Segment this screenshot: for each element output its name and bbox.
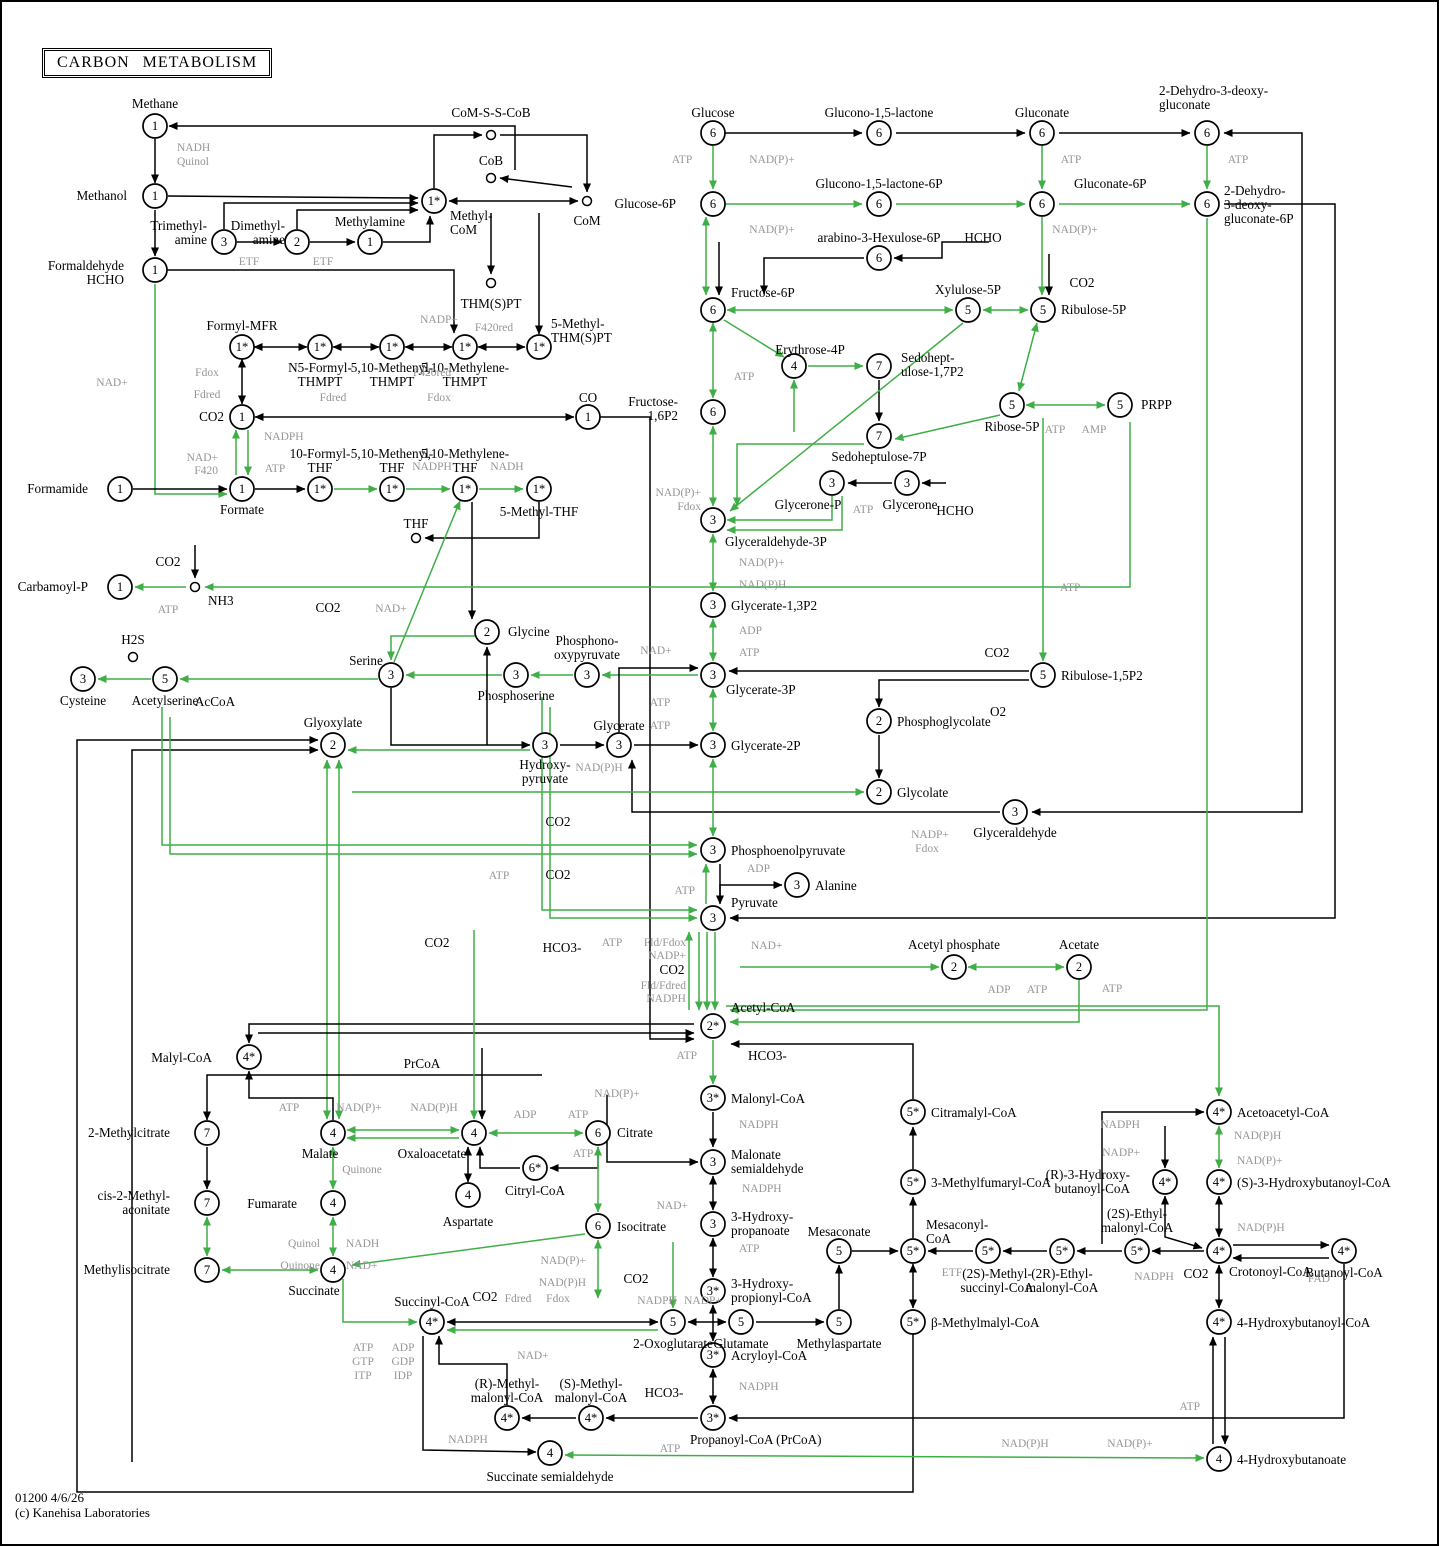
cofactor-atp: ATP bbox=[734, 371, 754, 383]
label-formate: Formate bbox=[220, 502, 264, 517]
node-count-ribulose-5p: 5 bbox=[1040, 303, 1046, 317]
label-hco3: HCO3- bbox=[748, 1048, 787, 1063]
node-count-phosphoserine: 3 bbox=[513, 668, 519, 682]
node-count-5-methyl-thf: 1* bbox=[533, 482, 546, 496]
label-gluconate-6p: Gluconate-6P bbox=[1074, 176, 1147, 191]
label-s-methyl: (S)-Methyl-malonyl-CoA bbox=[555, 1376, 628, 1405]
node-4-hydroxybutanoate[interactable]: 4 bbox=[1207, 1447, 1231, 1471]
label-glycerate-2p: Glycerate-2P bbox=[731, 738, 801, 753]
node-succinate-semialdehyde[interactable]: 4 bbox=[538, 1441, 562, 1465]
cofactor-fdred: Fdred bbox=[505, 1293, 532, 1305]
label-glycerone: Glycerone bbox=[883, 497, 938, 512]
node-count-malate: 4 bbox=[330, 1126, 337, 1140]
node-propanoyl-coa[interactable]: 3* bbox=[701, 1406, 725, 1430]
node-butanoyl-coa[interactable]: 4* bbox=[1332, 1239, 1356, 1263]
node-count-succinyl-coa: 4* bbox=[426, 1315, 439, 1329]
node-count-fumarate: 4 bbox=[330, 1196, 337, 1210]
label-10-formyl: 10-Formyl-THF bbox=[290, 446, 351, 475]
label-thf: THF bbox=[404, 516, 429, 531]
node-glucono-1-5-lactone[interactable]: 6 bbox=[867, 121, 891, 145]
cofactor-nadh: NADH bbox=[177, 142, 210, 154]
label-prcoa: PrCoA bbox=[404, 1056, 441, 1071]
node-count-glyceraldehyde-3p: 3 bbox=[710, 513, 716, 527]
node-count-s-methylmalonyl-coa: 4* bbox=[585, 1411, 598, 1425]
node-glycine[interactable]: 2 bbox=[475, 620, 499, 644]
node-fructose-6p[interactable]: 6 bbox=[701, 298, 725, 322]
node-count-citrate: 6 bbox=[595, 1126, 601, 1140]
label-h2s: H2S bbox=[121, 632, 144, 647]
node-glycerate-2p[interactable]: 3 bbox=[701, 733, 725, 757]
cofactor-atp: ATP bbox=[602, 937, 622, 949]
node-glycolate[interactable]: 2 bbox=[867, 780, 891, 804]
cofactor-nad-p: NAD(P)+ bbox=[336, 1102, 381, 1114]
node-formate[interactable]: 1 bbox=[230, 477, 254, 501]
node-count-carbamoyl-p: 1 bbox=[117, 580, 123, 594]
label-co2: CO2 bbox=[985, 645, 1010, 660]
node-malonate-semialdehyde[interactable]: 3 bbox=[701, 1150, 725, 1174]
node-n5-formyl-thmpt[interactable]: 1* bbox=[308, 335, 332, 359]
cofactor-adp: ADP bbox=[739, 625, 762, 637]
node-count-oxaloacetate: 4 bbox=[471, 1126, 478, 1140]
edge-10 bbox=[500, 178, 572, 187]
node-ribulose-1-5p2[interactable]: 5 bbox=[1031, 663, 1055, 687]
cofactor-nad: NAD+ bbox=[640, 645, 671, 657]
label-co2: CO2 bbox=[546, 867, 571, 882]
node-formyl-mfr[interactable]: 1* bbox=[230, 335, 254, 359]
node-count-glucono-1-5-lactone: 6 bbox=[876, 126, 882, 140]
node-count-glyceraldehyde: 3 bbox=[1012, 805, 1018, 819]
label-alanine: Alanine bbox=[815, 878, 857, 893]
node-glyceraldehyde-3p[interactable]: 3 bbox=[701, 508, 725, 532]
node-count-alanine: 3 bbox=[794, 878, 800, 892]
node-count-glycolate: 2 bbox=[876, 785, 882, 799]
node-count-xylulose-5p: 5 bbox=[965, 303, 971, 317]
node-count-glucono-1-5-lactone-6p: 6 bbox=[876, 197, 882, 211]
node-co2[interactable]: 1 bbox=[230, 405, 254, 429]
node-count-phosphoenolpyruvate: 3 bbox=[710, 843, 716, 857]
label-phosphono: Phosphono-oxypyruvate bbox=[554, 633, 620, 662]
node-gluconate[interactable]: 6 bbox=[1030, 121, 1054, 145]
node-count-r-methylmalonyl-coa: 4* bbox=[501, 1411, 514, 1425]
label-xylulose-5p: Xylulose-5P bbox=[935, 282, 1001, 297]
cofactor-nad-p: NAD(P)+ bbox=[656, 487, 701, 499]
node-count-10-formyl-thf: 1* bbox=[314, 482, 327, 496]
node-malonyl-coa[interactable]: 3* bbox=[701, 1086, 725, 1110]
node-xylulose-5p[interactable]: 5 bbox=[956, 298, 980, 322]
node-count-glycerate: 3 bbox=[616, 738, 622, 752]
node-count-formate: 1 bbox=[239, 482, 245, 496]
map-footer: 01200 4/6/26 (c) Kanehisa Laboratories bbox=[15, 1490, 150, 1520]
label-mesaconyl: Mesaconyl-CoA bbox=[926, 1217, 988, 1246]
node-methylene-thmpt[interactable]: 1* bbox=[453, 335, 477, 359]
node-count-methylisocitrate: 7 bbox=[204, 1263, 210, 1277]
label-glycerate-3p: Glycerate-3P bbox=[726, 682, 796, 697]
metabolite-dot-cob[interactable] bbox=[487, 174, 496, 183]
node-phosphoserine[interactable]: 3 bbox=[504, 663, 528, 687]
node-count-malonate-semialdehyde: 3 bbox=[710, 1155, 716, 1169]
node-citrate[interactable]: 6 bbox=[586, 1121, 610, 1145]
node-citryl-coa[interactable]: 6* bbox=[523, 1156, 547, 1180]
node-glycerate-3p[interactable]: 3 bbox=[701, 663, 725, 687]
cofactor-adp: ADP bbox=[513, 1109, 536, 1121]
node-formaldehyde[interactable]: 1 bbox=[143, 258, 167, 282]
label-hco3: HCO3- bbox=[543, 940, 582, 955]
label-sedoheptulose-7p: Sedoheptulose-7P bbox=[831, 449, 926, 464]
node-count-3-hydroxypropanoate: 3 bbox=[710, 1217, 716, 1231]
label-co2: CO2 bbox=[425, 935, 450, 950]
label-succinyl-coa: Succinyl-CoA bbox=[394, 1294, 470, 1309]
cofactor-atp: ATP bbox=[677, 1050, 697, 1062]
cofactor-nad-p: NAD(P)+ bbox=[594, 1088, 639, 1100]
node-count-erythrose-4p: 4 bbox=[791, 359, 798, 373]
node-2s-methylsuccinyl-coa[interactable]: 5* bbox=[976, 1239, 1000, 1263]
node-methenyl-thmpt[interactable]: 1* bbox=[380, 335, 404, 359]
node-count-butanoyl-coa: 4* bbox=[1338, 1244, 1351, 1258]
node-count-glucose-6p: 6 bbox=[710, 197, 716, 211]
node-beta-methylmalyl-coa[interactable]: 5* bbox=[901, 1310, 925, 1334]
cofactor-nad-p-h: NAD(P)H bbox=[1234, 1130, 1281, 1142]
label-pyruvate: Pyruvate bbox=[731, 895, 778, 910]
cofactor-quinol: Quinol bbox=[288, 1238, 320, 1250]
label-prpp: PRPP bbox=[1141, 397, 1172, 412]
node-count-glycerate-2p: 3 bbox=[710, 738, 716, 752]
node-erythrose-4p[interactable]: 4 bbox=[782, 354, 806, 378]
label-phosphoserine: Phosphoserine bbox=[478, 688, 555, 703]
cofactor-nad-p-h: NAD(P)H bbox=[1001, 1438, 1048, 1450]
node-co[interactable]: 1 bbox=[576, 405, 600, 429]
label-acetoacetyl-coa: Acetoacetyl-CoA bbox=[1237, 1105, 1330, 1120]
edge-1 bbox=[169, 126, 515, 170]
cofactor-quinone: Quinone bbox=[280, 1260, 320, 1272]
node-2-dehydro-3-deoxy-gluconate[interactable]: 6 bbox=[1195, 121, 1219, 145]
cofactor-nadph: NADPH bbox=[646, 993, 686, 1005]
node-glycerone[interactable]: 3 bbox=[895, 471, 919, 495]
cofactor-atp: ATP bbox=[739, 647, 759, 659]
label-2s-methyl: (2S)-Methyl-succinyl-CoA bbox=[960, 1266, 1034, 1295]
node-glycerate-1-3p2[interactable]: 3 bbox=[701, 593, 725, 617]
node-phosphonooxypyruvate[interactable]: 3 bbox=[575, 663, 599, 687]
node-count-methylaspartate: 5 bbox=[836, 1315, 842, 1329]
cofactor-nad: NAD+ bbox=[375, 603, 406, 615]
cofactor-atp: ATP bbox=[1045, 424, 1065, 436]
node-alanine[interactable]: 3 bbox=[785, 873, 809, 897]
cofactor-nad: NAD+ bbox=[517, 1350, 548, 1362]
cofactor-nadph: NADPH bbox=[1100, 1119, 1140, 1131]
label-accoa: AcCoA bbox=[195, 694, 236, 709]
node-count-malonyl-coa: 3* bbox=[707, 1091, 720, 1105]
cofactor-nad-p-h: NAD(P)H bbox=[410, 1102, 457, 1114]
node-glyoxylate[interactable]: 2 bbox=[321, 733, 345, 757]
label-3-methylfumaryl-coa: 3-Methylfumaryl-CoA bbox=[931, 1175, 1052, 1190]
node-acetyl-phosphate[interactable]: 2 bbox=[942, 955, 966, 979]
metabolite-dot-com[interactable] bbox=[583, 197, 592, 206]
node-hydroxypyruvate[interactable]: 3 bbox=[533, 733, 557, 757]
label-formamide: Formamide bbox=[27, 481, 88, 496]
label-aspartate: Aspartate bbox=[443, 1214, 494, 1229]
label-co: CO bbox=[579, 390, 597, 405]
label-fumarate: Fumarate bbox=[247, 1196, 297, 1211]
node-methylamine[interactable]: 1 bbox=[358, 230, 382, 254]
node-methenyl-thf[interactable]: 1* bbox=[380, 477, 404, 501]
label-methylaspartate: Methylaspartate bbox=[797, 1336, 882, 1351]
node-sedoheptulose-1-7p2[interactable]: 7 bbox=[867, 354, 891, 378]
node-prpp[interactable]: 5 bbox=[1108, 393, 1132, 417]
node-count-formyl-mfr: 1* bbox=[236, 340, 249, 354]
node-acetate[interactable]: 2 bbox=[1067, 955, 1091, 979]
cofactor-etf: ETF bbox=[239, 256, 259, 268]
node-malyl-coa[interactable]: 4* bbox=[237, 1045, 261, 1069]
node-methanol[interactable]: 1 bbox=[143, 184, 167, 208]
node-malate[interactable]: 4 bbox=[321, 1121, 345, 1145]
label-glycerate: Glycerate bbox=[593, 718, 644, 733]
label-co2: CO2 bbox=[660, 962, 685, 977]
node-isocitrate[interactable]: 6 bbox=[586, 1214, 610, 1238]
node-count-aspartate: 4 bbox=[465, 1188, 472, 1202]
metabolite-dot-thmspt[interactable] bbox=[487, 279, 496, 288]
label-glucono-1-5-lactone: Glucono-1,5-lactone bbox=[825, 105, 934, 120]
cofactor-fld-fdred: Fld/Fdred bbox=[641, 980, 687, 992]
cofactor-f420: F420 bbox=[194, 465, 218, 477]
metabolite-dot-h2s[interactable] bbox=[129, 653, 138, 662]
node-oxaloacetate[interactable]: 4 bbox=[462, 1121, 486, 1145]
node-count-citryl-coa: 6* bbox=[529, 1161, 542, 1175]
node-count-glycerone: 3 bbox=[904, 476, 910, 490]
node-acetyl-coa[interactable]: 2* bbox=[701, 1014, 725, 1038]
node-count-2-dehydro-3-deoxy-gluconate-6p: 6 bbox=[1204, 197, 1210, 211]
node-aspartate[interactable]: 4 bbox=[456, 1183, 480, 1207]
cofactor-fad: FAD bbox=[1308, 1273, 1330, 1285]
node-2-dehydro-3-deoxy-gluconate-6p[interactable]: 6 bbox=[1195, 192, 1219, 216]
label-mesaconate: Mesaconate bbox=[808, 1224, 871, 1239]
label-3-hydroxy: 3-Hydroxy-propionyl-CoA bbox=[731, 1276, 812, 1305]
node-fructose-1-6p2[interactable]: 6 bbox=[701, 400, 725, 424]
node-trimethylamine[interactable]: 3 bbox=[212, 230, 236, 254]
label-com-s-s-cob: CoM-S-S-CoB bbox=[451, 105, 530, 120]
label-cis-2-methyl: cis-2-Methyl-aconitate bbox=[97, 1188, 170, 1217]
node-count-phosphonooxypyruvate: 3 bbox=[584, 668, 590, 682]
cofactor-nadph: NADPH bbox=[742, 1183, 782, 1195]
node-succinate[interactable]: 4 bbox=[321, 1258, 345, 1282]
label-malonate: Malonatesemialdehyde bbox=[731, 1147, 804, 1176]
edge-79 bbox=[879, 680, 1029, 707]
node-count-2s-methylsuccinyl-coa: 5* bbox=[982, 1244, 995, 1258]
label-glycolate: Glycolate bbox=[897, 785, 948, 800]
node-count-acetate: 2 bbox=[1076, 960, 1082, 974]
label-phosphoglycolate: Phosphoglycolate bbox=[897, 714, 991, 729]
cofactor-nadh: NADH bbox=[490, 461, 523, 473]
node-glyceraldehyde[interactable]: 3 bbox=[1003, 800, 1027, 824]
label-serine: Serine bbox=[349, 653, 383, 668]
label-co2: CO2 bbox=[546, 814, 571, 829]
map-id: 01200 4/6/26 bbox=[15, 1490, 150, 1505]
metabolite-dot-nh3[interactable] bbox=[191, 583, 200, 592]
node-count-sedoheptulose-1-7p2: 7 bbox=[876, 359, 882, 373]
node-count-s-3-hydroxybutanoyl-coa: 4* bbox=[1213, 1175, 1226, 1189]
label-phosphoenolpyruvate: Phosphoenolpyruvate bbox=[731, 843, 845, 858]
node-fumarate[interactable]: 4 bbox=[321, 1191, 345, 1215]
node-count-glycine: 2 bbox=[484, 625, 490, 639]
node-glucose-6p[interactable]: 6 bbox=[701, 192, 725, 216]
label-glucose: Glucose bbox=[691, 105, 734, 120]
cofactor-nad-p: NAD(P)+ bbox=[1237, 1155, 1282, 1167]
label-crotonoyl-coa: Crotonoyl-CoA bbox=[1229, 1264, 1312, 1279]
node-5-methyl-thf[interactable]: 1* bbox=[527, 477, 551, 501]
node-count-gluconate: 6 bbox=[1039, 126, 1045, 140]
label-methyl: Methyl-CoM bbox=[450, 208, 493, 237]
labels-layer: MethaneMethanolTrimethyl-amineDimethyl-a… bbox=[18, 83, 1392, 1484]
node-count-methanol: 1 bbox=[152, 189, 158, 203]
cofactor-amp: AMP bbox=[1082, 424, 1107, 436]
cofactor-quinone: Quinone bbox=[342, 1164, 382, 1176]
node-count-r-3-hydroxybutanoyl-coa: 4* bbox=[1159, 1175, 1172, 1189]
map-title: CARBON METABOLISM bbox=[57, 54, 257, 71]
label-glyoxylate: Glyoxylate bbox=[304, 715, 363, 730]
node-count-2r-ethylmalonyl-coa: 5* bbox=[1056, 1244, 1069, 1258]
node-3-hydroxypropanoate[interactable]: 3 bbox=[701, 1212, 725, 1236]
node-methylisocitrate[interactable]: 7 bbox=[195, 1258, 219, 1282]
node-r-methylmalonyl-coa[interactable]: 4* bbox=[495, 1406, 519, 1430]
node-count-formaldehyde: 1 bbox=[152, 263, 158, 277]
node-phosphoglycolate[interactable]: 2 bbox=[867, 709, 891, 733]
cofactor-adp: ADP bbox=[391, 1342, 414, 1354]
label-co2: CO2 bbox=[316, 600, 341, 615]
label-2-dehydro-3-deoxy: 2-Dehydro-3-deoxy-gluconate bbox=[1159, 83, 1268, 112]
node-sedoheptulose-7p[interactable]: 7 bbox=[867, 424, 891, 448]
cofactor-nadp: NADP+ bbox=[1102, 1147, 1140, 1159]
label-glyceraldehyde: Glyceraldehyde bbox=[973, 825, 1057, 840]
cofactor-adp: ADP bbox=[747, 863, 770, 875]
node-citramalyl-coa[interactable]: 5* bbox=[901, 1100, 925, 1124]
node-acetylserine[interactable]: 5 bbox=[153, 667, 177, 691]
node-glutamate[interactable]: 5 bbox=[729, 1310, 753, 1334]
node-3-methylfumaryl-coa[interactable]: 5* bbox=[901, 1170, 925, 1194]
label-methylmalyl-coa: β-Methylmalyl-CoA bbox=[931, 1315, 1040, 1330]
label-com: CoM bbox=[573, 213, 600, 228]
label-methane: Methane bbox=[132, 96, 178, 111]
label-carbamoyl-p: Carbamoyl-P bbox=[18, 579, 88, 594]
node-formamide[interactable]: 1 bbox=[108, 477, 132, 501]
cofactor-etf: ETF bbox=[942, 1267, 962, 1279]
node-gluconate-6p[interactable]: 6 bbox=[1030, 192, 1054, 216]
node-succinyl-coa[interactable]: 4* bbox=[420, 1310, 444, 1334]
node-s-methylmalonyl-coa[interactable]: 4* bbox=[579, 1406, 603, 1430]
node-mesaconyl-coa[interactable]: 5* bbox=[901, 1239, 925, 1263]
cofactor-fld-fdox: Fld/Fdox bbox=[644, 937, 686, 949]
node-count-acetoacetyl-coa: 4* bbox=[1213, 1105, 1226, 1119]
node-2-methylcitrate[interactable]: 7 bbox=[195, 1121, 219, 1145]
node-methyl-thmspt[interactable]: 1* bbox=[527, 335, 551, 359]
cofactor-atp: ATP bbox=[650, 720, 670, 732]
cofactor-atp: ATP bbox=[1102, 983, 1122, 995]
node-2-oxoglutarate[interactable]: 5 bbox=[661, 1310, 685, 1334]
label-methanol: Methanol bbox=[76, 188, 127, 203]
label-n5-formyl: N5-Formyl-THMPT bbox=[288, 360, 352, 389]
node-10-formyl-thf[interactable]: 1* bbox=[308, 477, 332, 501]
metabolite-dot-thf[interactable] bbox=[412, 534, 421, 543]
label-4-hydroxybutanoate: 4-Hydroxybutanoate bbox=[1237, 1452, 1346, 1467]
label-glucono-1-5-lactone-6p: Glucono-1,5-lactone-6P bbox=[815, 176, 942, 191]
label-formaldehyde: FormaldehydeHCHO bbox=[48, 258, 124, 287]
label-glyceraldehyde-3p: Glyceraldehyde-3P bbox=[725, 534, 827, 549]
node-count-prpp: 5 bbox=[1117, 398, 1123, 412]
node-count-2-oxoglutarate: 5 bbox=[670, 1315, 676, 1329]
node-count-crotonoyl-coa: 4* bbox=[1213, 1244, 1226, 1258]
node-r-3-hydroxybutanoyl-coa[interactable]: 4* bbox=[1153, 1170, 1177, 1194]
node-glucono-1-5-lactone-6p[interactable]: 6 bbox=[867, 192, 891, 216]
label-cob: CoB bbox=[479, 153, 503, 168]
node-count-2-methylcitrate: 7 bbox=[204, 1126, 210, 1140]
node-glycerate[interactable]: 3 bbox=[607, 733, 631, 757]
node-count-gluconate-6p: 6 bbox=[1039, 197, 1045, 211]
label-oxaloacetate: Oxaloacetate bbox=[398, 1146, 467, 1161]
label-2s-ethyl: (2S)-Ethyl-malonyl-CoA bbox=[1101, 1206, 1174, 1235]
node-pyruvate[interactable]: 3 bbox=[701, 906, 725, 930]
cofactor-f420red: F420red bbox=[413, 367, 452, 379]
cofactor-nad-p-h: NAD(P)H bbox=[575, 762, 622, 774]
label-2-methylcitrate: 2-Methylcitrate bbox=[88, 1125, 170, 1140]
node-dimethylamine[interactable]: 2 bbox=[285, 230, 309, 254]
node-4-hydroxybutanoyl-coa[interactable]: 4* bbox=[1207, 1310, 1231, 1334]
node-phosphoenolpyruvate[interactable]: 3 bbox=[701, 838, 725, 862]
cofactor-nad-p: NAD(P)+ bbox=[749, 224, 794, 236]
cofactor-fdox: Fdox bbox=[546, 1293, 570, 1305]
node-cysteine[interactable]: 3 bbox=[71, 667, 95, 691]
node-methane[interactable]: 1 bbox=[143, 114, 167, 138]
edge-124 bbox=[565, 1455, 1204, 1458]
node-methylene-thf[interactable]: 1* bbox=[453, 477, 477, 501]
node-glycerone-p[interactable]: 3 bbox=[820, 471, 844, 495]
cofactor-nad-p: NAD(P)+ bbox=[749, 154, 794, 166]
node-count-glyoxylate: 2 bbox=[330, 738, 336, 752]
node-cis-2-methylaconitate[interactable]: 7 bbox=[195, 1191, 219, 1215]
cofactor-atp: ATP bbox=[660, 1443, 680, 1455]
map-copyright: (c) Kanehisa Laboratories bbox=[15, 1505, 150, 1520]
node-count-pyruvate: 3 bbox=[710, 911, 716, 925]
node-count-succinate-semialdehyde: 4 bbox=[547, 1446, 554, 1460]
cofactor-nad: NAD+ bbox=[187, 452, 218, 464]
node-count-citramalyl-coa: 5* bbox=[907, 1105, 920, 1119]
metabolite-dot-com-s-s-cob[interactable] bbox=[487, 131, 496, 140]
cofactor-atp: ATP bbox=[1180, 1401, 1200, 1413]
label-cysteine: Cysteine bbox=[60, 693, 106, 708]
node-2s-ethylmalonyl-coa[interactable]: 5* bbox=[1125, 1239, 1149, 1263]
node-acetoacetyl-coa[interactable]: 4* bbox=[1207, 1100, 1231, 1124]
cofactor-f420red: F420red bbox=[475, 322, 514, 334]
node-ribose-5p[interactable]: 5 bbox=[1000, 393, 1024, 417]
cofactor-nad-p-h: NAD(P)H bbox=[1237, 1222, 1284, 1234]
node-glucose[interactable]: 6 bbox=[701, 121, 725, 145]
node-mesaconate[interactable]: 5 bbox=[827, 1239, 851, 1263]
node-s-3-hydroxybutanoyl-coa[interactable]: 4* bbox=[1207, 1170, 1231, 1194]
node-count-acetyl-phosphate: 2 bbox=[951, 960, 957, 974]
label-succinate: Succinate bbox=[288, 1283, 339, 1298]
node-methyl-com[interactable]: 1* bbox=[422, 189, 446, 213]
cofactor-atp: ATP bbox=[853, 504, 873, 516]
node-methylaspartate[interactable]: 5 bbox=[827, 1310, 851, 1334]
node-arabino-3-hexulose-6p[interactable]: 6 bbox=[867, 246, 891, 270]
cofactor-nadh: NADH bbox=[346, 1238, 379, 1250]
node-ribulose-5p[interactable]: 5 bbox=[1031, 298, 1055, 322]
node-2r-ethylmalonyl-coa[interactable]: 5* bbox=[1050, 1239, 1074, 1263]
cofactor-nadph: NADPH bbox=[1134, 1271, 1174, 1283]
label-co2: CO2 bbox=[156, 554, 181, 569]
label-hydroxy: Hydroxy-pyruvate bbox=[519, 757, 570, 786]
label-r-3-hydroxy: (R)-3-Hydroxy-butanoyl-CoA bbox=[1046, 1167, 1131, 1196]
node-carbamoyl-p[interactable]: 1 bbox=[108, 575, 132, 599]
node-count-dimethylamine: 2 bbox=[294, 235, 300, 249]
node-crotonoyl-coa[interactable]: 4* bbox=[1207, 1239, 1231, 1263]
cofactor-atp: ATP bbox=[672, 154, 692, 166]
